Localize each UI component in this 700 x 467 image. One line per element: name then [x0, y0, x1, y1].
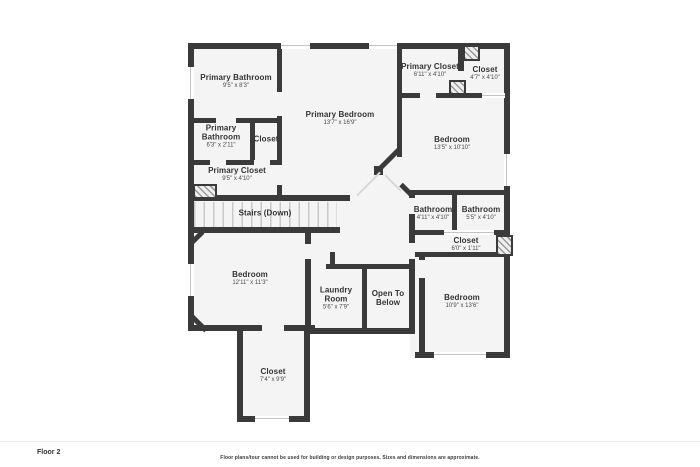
room-label-closet-small: Closet: [253, 134, 278, 143]
room-label-bedroom-bottom: Bedroom 10'9" x 13'6": [444, 293, 480, 309]
room-dims: 6'0" x 1'11": [451, 246, 480, 252]
room-dims: 4'11" x 4'10": [414, 215, 453, 221]
room-label-bathroom-2: Bathroom 5'5" x 4'10": [462, 205, 501, 221]
room-dims: 6'11" x 4'10": [401, 72, 459, 78]
room-name: Primary Bathroom: [200, 73, 271, 82]
room-label-bedroom-right: Bedroom 13'5" x 10'10": [434, 135, 470, 151]
door-opening: [262, 325, 284, 331]
wall: [397, 43, 402, 157]
room-dims: 9'5" x 8'3": [200, 83, 271, 89]
room-label-closet-top-right: Closet 4'7" x 4'10": [470, 65, 500, 81]
window: [188, 67, 194, 99]
wall: [304, 330, 310, 422]
room-dims: 7'4" x 9'9": [260, 377, 286, 383]
shaft-hatch: [449, 80, 466, 95]
room-label-bathroom-1: Bathroom 4'11" x 4'10": [414, 205, 453, 221]
wall: [409, 190, 510, 195]
wall: [305, 328, 415, 334]
room-name: Closet: [260, 367, 286, 376]
room-dims: 10'9" x 13'6": [444, 303, 480, 309]
room-name: Bedroom: [232, 270, 268, 279]
door-opening: [277, 92, 282, 116]
window: [255, 416, 289, 422]
window: [281, 43, 310, 49]
room-name: Open To Below: [363, 289, 413, 307]
floor-plan-page: Primary Bathroom 9'5" x 8'3" Primary Bed…: [0, 0, 700, 467]
room-label-primary-bedroom: Primary Bedroom 13'7" x 16'9": [306, 110, 375, 126]
sliding-door: [444, 230, 494, 235]
room-label-open-to-below: Open To Below: [363, 289, 413, 307]
door-opening: [409, 243, 415, 259]
room-dims: 5'5" x 4'10": [462, 215, 501, 221]
room-name: Primary Closet: [208, 166, 266, 175]
room-label-closet-hall: Closet 6'0" x 1'11": [451, 236, 480, 252]
room-name: Bathroom: [414, 205, 453, 214]
floor-area: [305, 232, 415, 334]
room-label-primary-bathroom-2: Primary Bathroom 6'3" x 2'11": [195, 123, 247, 148]
room-dims: 12'11" x 11'3": [232, 280, 268, 286]
room-label-primary-closet: Primary Closet 9'5" x 4'10": [208, 166, 266, 182]
shaft-hatch: [463, 45, 480, 61]
wall: [237, 330, 243, 422]
door-opening: [254, 160, 270, 165]
room-name: Stairs (Down): [239, 208, 292, 217]
room-label-primary-bathroom-1: Primary Bathroom 9'5" x 8'3": [200, 73, 271, 89]
room-label-stairs: Stairs (Down): [239, 208, 292, 217]
room-name: Laundry Room: [313, 285, 359, 303]
door-opening: [419, 260, 425, 278]
window: [188, 264, 194, 296]
window: [504, 154, 510, 186]
room-dims: 9'5" x 4'10": [208, 176, 266, 182]
window: [434, 352, 486, 358]
door-opening: [277, 165, 282, 185]
room-dims: 13'5" x 10'10": [434, 145, 470, 151]
room-name: Bedroom: [434, 135, 470, 144]
room-label-primary-closet-top: Primary Closet 6'11" x 4'10": [401, 62, 459, 78]
room-name: Primary Bedroom: [306, 110, 375, 119]
footer-divider: [0, 441, 700, 442]
shaft-hatch: [193, 184, 217, 199]
room-name: Bedroom: [444, 293, 480, 302]
room-name: Primary Bathroom: [195, 123, 247, 141]
room-label-bedroom-left: Bedroom 12'11" x 11'3": [232, 270, 268, 286]
shaft-hatch: [496, 235, 513, 256]
wall: [330, 252, 335, 269]
door-opening: [216, 118, 236, 123]
room-label-laundry: Laundry Room 5'6" x 7'9": [313, 285, 359, 310]
door-opening: [420, 93, 436, 98]
sliding-door: [482, 93, 505, 98]
room-name: Closet: [451, 236, 480, 245]
wall: [326, 264, 415, 269]
room-dims: 13'7" x 16'9": [306, 120, 375, 126]
wall: [452, 190, 457, 235]
room-dims: 4'7" x 4'10": [470, 75, 500, 81]
room-label-closet-bottom: Closet 7'4" x 9'9": [260, 367, 286, 383]
wall: [188, 227, 340, 233]
room-name: Closet: [253, 134, 278, 143]
window: [369, 43, 397, 49]
wall: [504, 43, 510, 358]
door-opening: [305, 244, 311, 259]
room-name: Bathroom: [462, 205, 501, 214]
room-name: Closet: [470, 65, 500, 74]
door-opening: [210, 160, 226, 165]
room-name: Primary Closet: [401, 62, 459, 71]
room-dims: 6'3" x 2'11": [195, 143, 247, 149]
room-dims: 5'6" x 7'9": [313, 305, 359, 311]
disclaimer-text: Floor plans/tour cannot be used for buil…: [0, 455, 700, 461]
